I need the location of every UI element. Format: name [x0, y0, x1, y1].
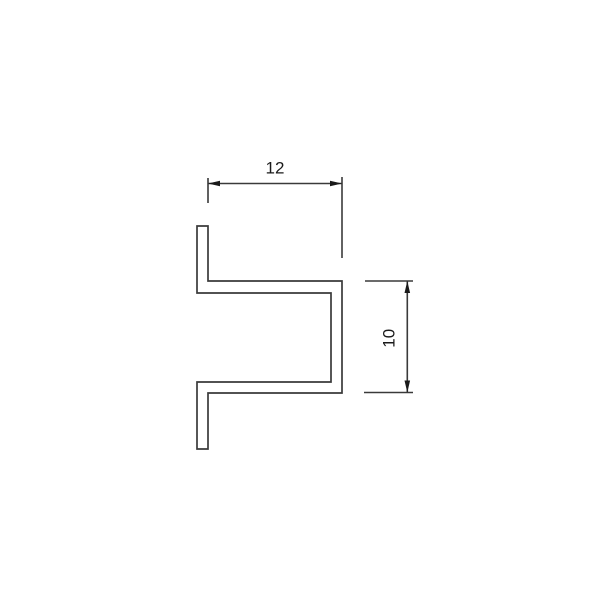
svg-text:10: 10 — [380, 329, 399, 348]
svg-text:12: 12 — [266, 159, 285, 178]
